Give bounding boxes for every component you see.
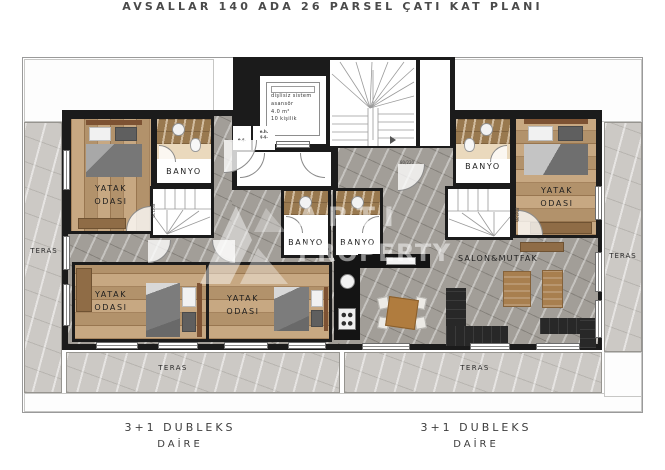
terrace-right (604, 122, 642, 352)
elevator-text: 4.0 m² (271, 109, 290, 115)
main-staircase (330, 60, 416, 146)
room-label-bedroom: YATAK ODASI (517, 184, 597, 210)
terrace-bottom-left (66, 352, 340, 393)
room-label-banyo: BANYO (283, 236, 329, 249)
elevator-text: 10 kişilik (271, 116, 297, 122)
console (520, 242, 564, 252)
window (595, 252, 602, 292)
window (470, 343, 510, 350)
window (158, 342, 198, 349)
window (63, 150, 70, 190)
room-label-bedroom: YATAK ODASI (212, 292, 274, 318)
dresser (78, 218, 126, 229)
rug (503, 271, 531, 307)
roof-hatch-bottom-right (604, 352, 642, 397)
bed (86, 120, 142, 177)
terrace-left (24, 122, 62, 393)
window (224, 342, 268, 349)
room-label-bedroom: YATAK ODASI (70, 182, 152, 208)
duplex-stairs-left (150, 186, 214, 238)
rug (542, 270, 563, 308)
apartment-label-left: 3+1 DUBLEKS DAİRE (100, 421, 260, 450)
elevator-door (276, 141, 310, 148)
window (595, 300, 602, 338)
floor-plan: AVSALLAR 140 ADA 26 PARSEL ÇATI KAT PLAN… (0, 0, 665, 470)
bed (524, 119, 588, 175)
dining-set (378, 294, 426, 332)
door-size-label: 80/220 (400, 160, 414, 165)
roof-hatch-bottom (24, 393, 642, 412)
terrace-bottom-right (344, 352, 602, 393)
room-label-living: SALON&MUTFAK (438, 252, 558, 265)
elevator-text: dişlisiz sistem (271, 93, 312, 99)
window (63, 236, 70, 270)
window (362, 343, 410, 350)
terrace-label: TERAS (432, 364, 518, 372)
shaft-ss-label: ş.ş. (253, 134, 275, 139)
window (63, 284, 70, 326)
core-corridor (420, 60, 450, 146)
bathroom-right (453, 116, 513, 186)
page-title: AVSALLAR 140 ADA 26 PARSEL ÇATI KAT PLAN… (0, 0, 665, 13)
elevator-counterweight (271, 86, 315, 93)
room-label-bedroom: YATAK ODASI (76, 288, 146, 314)
terrace-label: TERAS (24, 247, 64, 255)
room-label-banyo: BANYO (156, 165, 212, 178)
terrace-label: TERAS (130, 364, 216, 372)
bed (146, 283, 202, 337)
kitchen-counter (334, 256, 360, 340)
window (288, 342, 326, 349)
duplex-stairs-right (445, 186, 513, 240)
window (96, 342, 138, 349)
terrace-label: TERAS (602, 252, 644, 260)
room-label-banyo: BANYO (455, 160, 511, 173)
apartment-label-right: 3+1 DUBLEKS DAİRE (396, 421, 556, 450)
bed (274, 287, 328, 331)
window (536, 343, 580, 350)
elevator-text: asansör (271, 101, 293, 107)
room-label-banyo: BANYO (335, 236, 381, 249)
corner-sofa (580, 318, 596, 348)
kitchen-counter-top (358, 254, 430, 268)
